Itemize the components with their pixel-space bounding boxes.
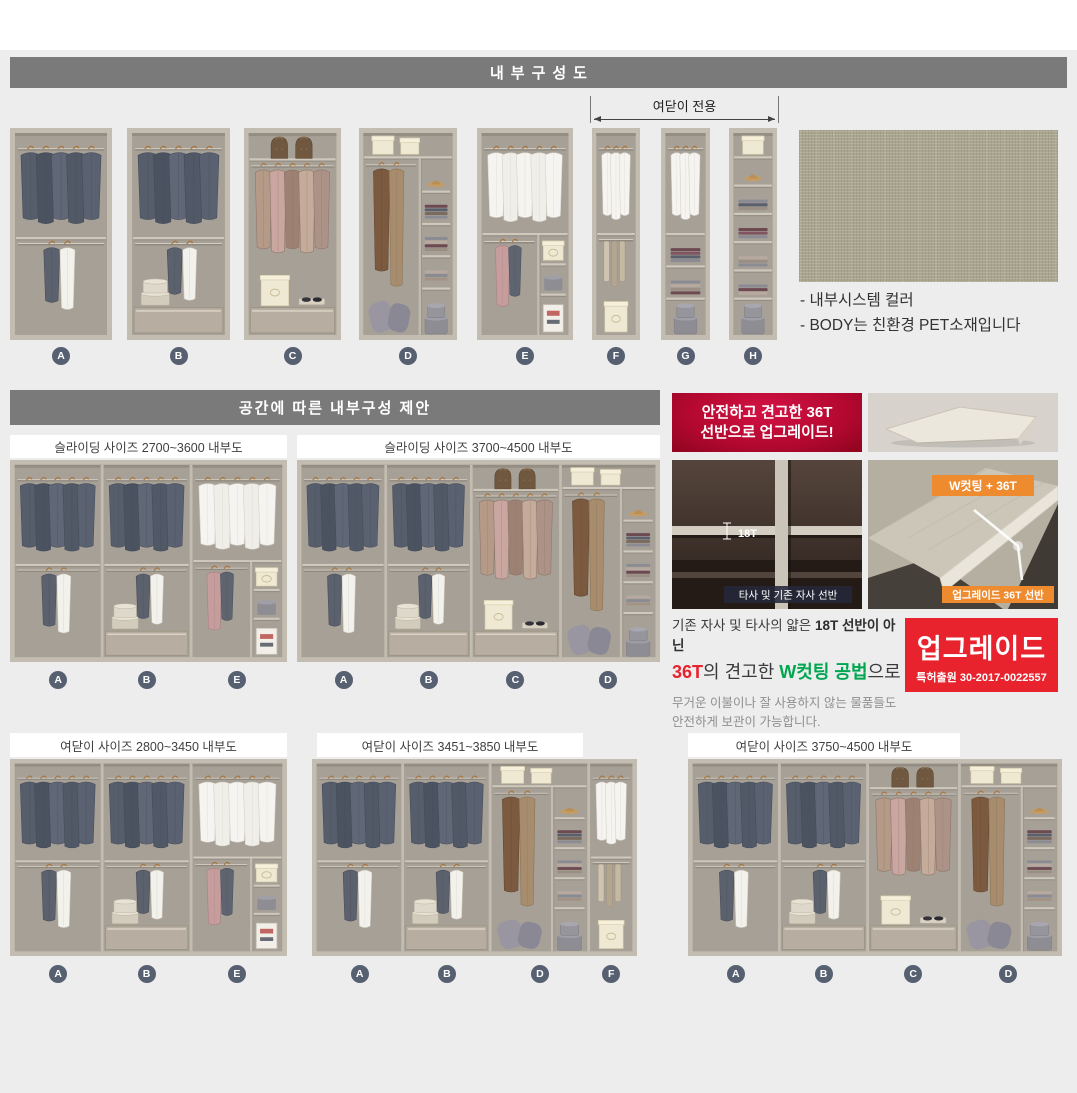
module-letter-badge: G (677, 347, 695, 365)
module-letter-badge: A (351, 965, 369, 983)
module-letter-badge: A (49, 965, 67, 983)
section-header-layout-proposal: 공간에 따른 내부구성 제안 (10, 390, 660, 425)
module-letter-badge: B (438, 965, 456, 983)
module-letter-badge: B (420, 671, 438, 689)
panel-title: 슬라이딩 사이즈 2700~3600 내부도 (10, 435, 287, 458)
wardrobe-interior-image (312, 759, 637, 956)
wardrobe-illustration (592, 128, 640, 340)
section-header-internal-configuration: 내부구성도 (10, 57, 1067, 88)
wardrobe-illustration (359, 128, 457, 340)
desc-line2: 36T의 견고한 W컷팅 공법으로 (672, 658, 904, 684)
module-letter-cell: A (301, 671, 386, 689)
module-letter-cell: C (471, 671, 560, 689)
module-letter-badge: D (999, 965, 1017, 983)
module-letter-badge: A (335, 671, 353, 689)
wardrobe-type-C: C (244, 128, 341, 365)
module-letter-badge: F (602, 965, 620, 983)
module-letter-badge: H (744, 347, 762, 365)
module-letter-cell: F (589, 965, 633, 983)
module-letter-badge: A (727, 965, 745, 983)
module-letter-badge: B (138, 671, 156, 689)
material-notes: - 내부시스템 컬러 - BODY는 친환경 PET소재입니다 (800, 288, 1021, 338)
module-letter-cell: C (867, 965, 959, 983)
module-letter-cell: B (102, 671, 190, 689)
module-letter-badge: A (49, 671, 67, 689)
wardrobe-interior-image (10, 460, 287, 662)
wardrobe-illustration (729, 128, 777, 340)
module-letter-cell: D (491, 965, 590, 983)
wardrobe-illustration (244, 128, 341, 340)
hinged-door-only-label: 여닫이 전용 (591, 96, 778, 115)
upgrade-patent-stamp: 업그레이드 특허출원 30-2017-0022557 (905, 618, 1058, 692)
module-letter-cell: D (560, 671, 656, 689)
double-arrow-icon (594, 119, 775, 120)
stamp-title: 업그레이드 (905, 627, 1058, 666)
desc-small: 무거운 이불이나 잘 사용하지 않는 물품들도 안전하게 보관이 가능합니다. (672, 694, 904, 733)
module-letters-row: ABE (10, 671, 287, 689)
wardrobe-illustration (10, 128, 112, 340)
wardrobe-type-H: H (729, 128, 777, 365)
module-letter-badge: D (399, 347, 417, 365)
wardrobe-illustration (661, 128, 710, 340)
module-letter-badge: B (170, 347, 188, 365)
panel-title: 슬라이딩 사이즈 3700~4500 내부도 (297, 435, 660, 458)
banner-line2: 선반으로 업그레이드! (700, 423, 833, 443)
module-letter-cell: B (102, 965, 190, 983)
module-letter-badge: E (516, 347, 534, 365)
module-letter-badge: E (228, 671, 246, 689)
wardrobe-type-D: D (359, 128, 457, 365)
module-letter-cell: A (14, 671, 102, 689)
note-pet-body: - BODY는 친환경 PET소재입니다 (800, 313, 1021, 338)
svg-text:업그레이드 36T 선반: 업그레이드 36T 선반 (952, 589, 1044, 602)
banner-line1: 안전하고 견고한 36T (702, 403, 833, 423)
module-letter-badge: C (904, 965, 922, 983)
product-detail-page: 내부구성도 여닫이 전용 ABCDEFGH - 내부시스템 컬러 - BODY는… (0, 0, 1077, 1093)
module-letters-row: ABCD (297, 671, 660, 689)
wardrobe-interior-image (688, 759, 1062, 956)
panel-hinged-3750-4500: 여닫이 사이즈 3750~4500 내부도 ABCD (688, 733, 1062, 983)
upgrade-banner: 안전하고 견고한 36T 선반으로 업그레이드! (672, 393, 862, 452)
module-letter-cell: A (692, 965, 780, 983)
wardrobe-type-A: A (10, 128, 112, 365)
panel-sliding-3700-4500: 슬라이딩 사이즈 3700~4500 내부도 ABCD (297, 435, 660, 689)
svg-text:18T: 18T (738, 528, 757, 540)
module-letter-badge: E (228, 965, 246, 983)
module-letter-badge: C (506, 671, 524, 689)
panel-title: 여닫이 사이즈 3750~4500 내부도 (688, 733, 960, 757)
wardrobe-illustration (477, 128, 573, 340)
wardrobe-type-F: F (592, 128, 640, 365)
svg-text:타사 및 기존 자사 선반: 타사 및 기존 자사 선반 (739, 590, 838, 602)
module-letters-row: ABE (10, 965, 287, 983)
module-letter-cell: A (316, 965, 403, 983)
module-letters-row: ABDF (312, 965, 637, 983)
module-letters-row: ABCD (688, 965, 1062, 983)
module-letter-badge: F (607, 347, 625, 365)
wardrobe-type-B: B (127, 128, 230, 365)
module-letter-cell: E (191, 965, 283, 983)
old-18t-shelf-image: 18T 타사 및 기존 자사 선반 (672, 460, 862, 609)
module-letter-cell: B (403, 965, 490, 983)
module-letter-badge: B (138, 965, 156, 983)
36t-shelf-product-image (868, 393, 1058, 452)
wardrobe-type-E: E (477, 128, 573, 365)
module-letter-badge: B (815, 965, 833, 983)
wardrobe-illustration (127, 128, 230, 340)
hinged-door-only-range-marker: 여닫이 전용 (590, 96, 779, 123)
wardrobe-interior-image (10, 759, 287, 956)
module-letter-badge: C (284, 347, 302, 365)
module-letter-cell: A (14, 965, 102, 983)
panel-sliding-2700-3600: 슬라이딩 사이즈 2700~3600 내부도 ABE (10, 435, 287, 689)
panel-hinged-2800-3450: 여닫이 사이즈 2800~3450 내부도 ABE (10, 733, 287, 983)
module-letter-cell: D (959, 965, 1058, 983)
panel-title: 여닫이 사이즈 2800~3450 내부도 (10, 733, 287, 757)
module-letter-cell: B (780, 965, 868, 983)
upgrade-description: 기존 자사 및 타사의 얇은 18T 선반이 아닌 36T의 견고한 W컷팅 공… (672, 614, 904, 733)
svg-text:W컷팅 + 36T: W컷팅 + 36T (949, 478, 1017, 493)
wardrobe-type-G: G (661, 128, 710, 365)
panel-hinged-3451-3850: 여닫이 사이즈 3451~3850 내부도 ABDF (312, 733, 637, 983)
interior-color-swatch (799, 130, 1058, 282)
module-letter-badge: D (531, 965, 549, 983)
module-letter-badge: A (52, 347, 70, 365)
panel-title: 여닫이 사이즈 3451~3850 내부도 (317, 733, 583, 757)
wardrobe-interior-image (297, 460, 660, 662)
module-letter-badge: D (599, 671, 617, 689)
new-36t-shelf-image: W컷팅 + 36T 업그레이드 36T 선반 (868, 460, 1058, 609)
note-interior-color: - 내부시스템 컬러 (800, 288, 1021, 313)
desc-line1: 기존 자사 및 타사의 얇은 18T 선반이 아닌 (672, 614, 904, 654)
stamp-patent-number: 특허출원 30-2017-0022557 (905, 669, 1058, 685)
module-letter-cell: B (386, 671, 471, 689)
module-letter-cell: E (191, 671, 283, 689)
